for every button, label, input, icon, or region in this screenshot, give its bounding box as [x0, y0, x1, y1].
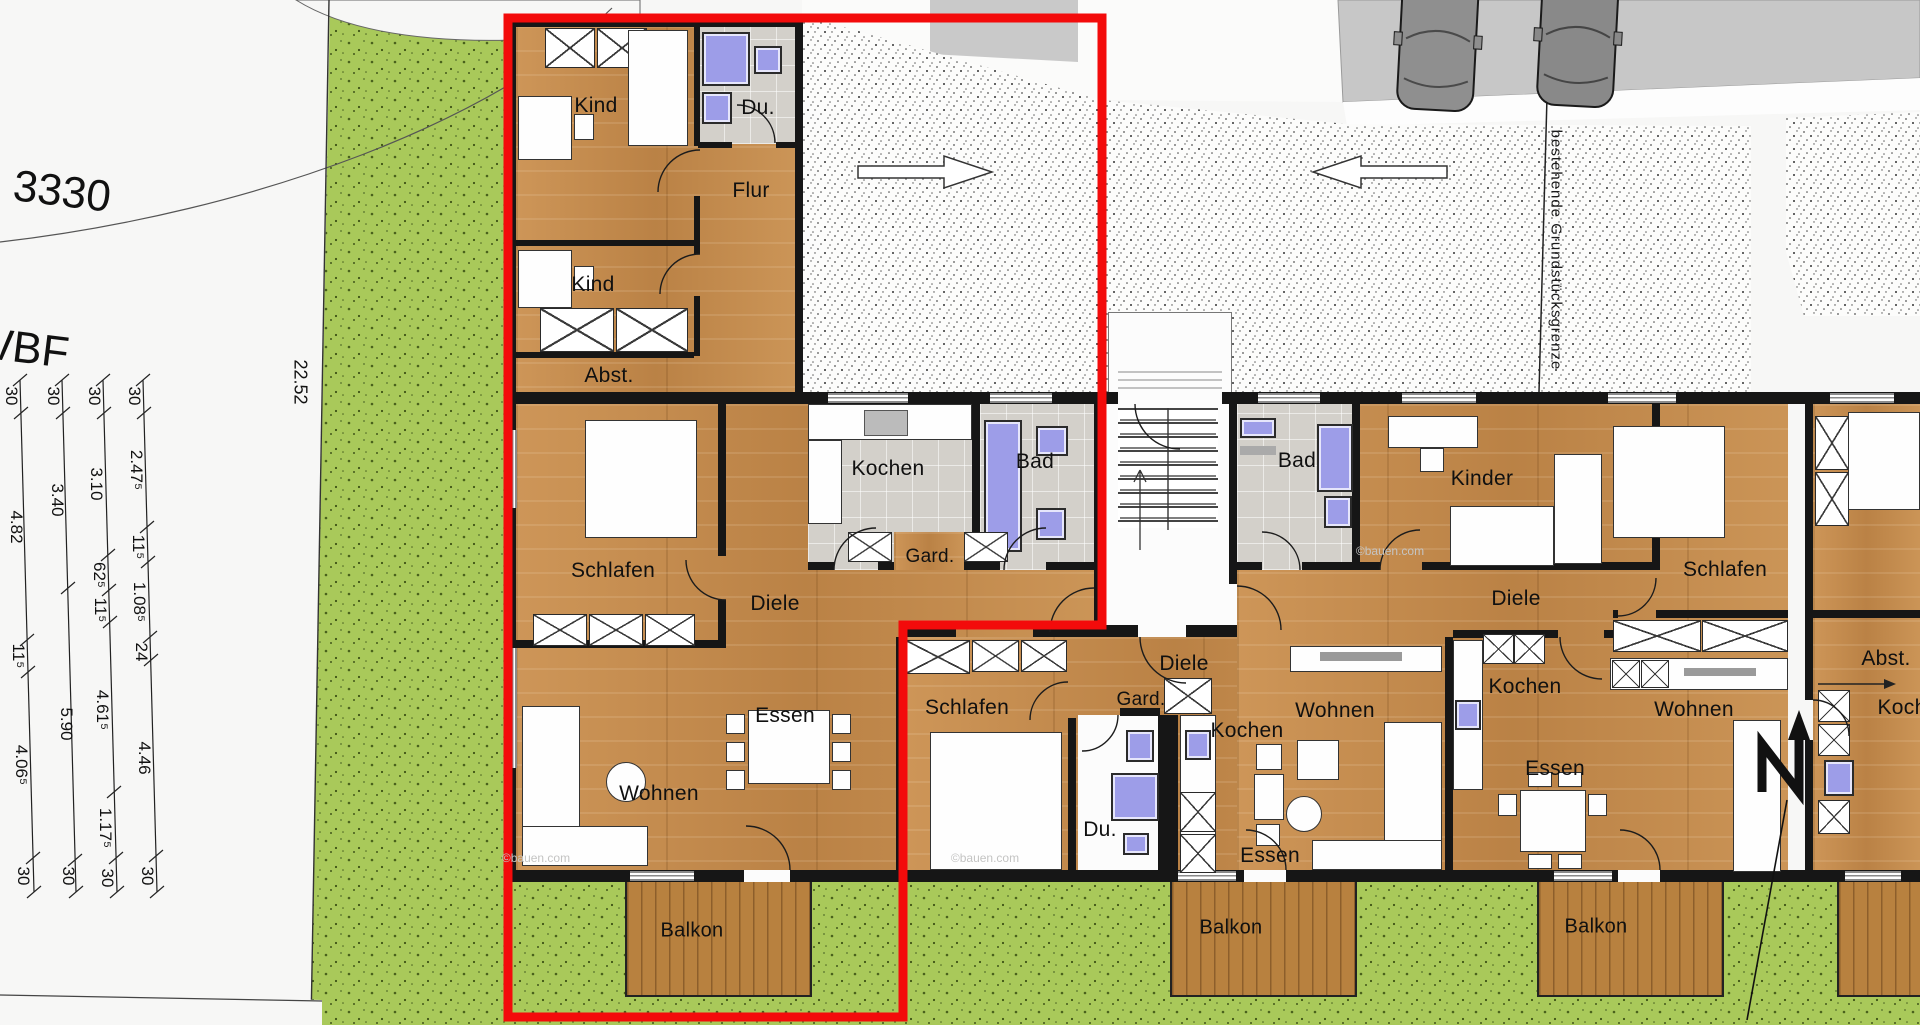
- kitchen-counter: [808, 440, 842, 524]
- dining-table: [1520, 790, 1586, 852]
- partition: [1068, 718, 1076, 870]
- window: [1402, 393, 1476, 403]
- road-strip: [1338, 0, 1920, 102]
- armchair: [1297, 740, 1339, 780]
- wardrobe: [906, 640, 970, 674]
- balcony-deck: [1537, 882, 1724, 997]
- wardrobe: [1554, 454, 1602, 564]
- partition: [694, 296, 700, 356]
- sofa: [1733, 720, 1781, 872]
- chair: [832, 770, 851, 790]
- room-label-diele3: Diele: [1491, 587, 1540, 611]
- wardrobe: [964, 532, 1008, 562]
- partition: [698, 142, 732, 148]
- wardrobe: [1815, 416, 1849, 470]
- dim-value: 62⁵: [89, 562, 109, 588]
- room-label-gard1: Gard.: [905, 546, 954, 568]
- room-label-bad1: Bad: [1016, 450, 1054, 474]
- partition: [808, 562, 834, 570]
- wall: [795, 20, 803, 392]
- dim-value: 30: [97, 869, 117, 888]
- driveway-stipple: [802, 15, 1751, 392]
- partition: [516, 240, 694, 246]
- cabinet: [1818, 724, 1850, 756]
- cabinet: [1818, 690, 1850, 722]
- chair: [1498, 794, 1517, 816]
- wardrobe: [848, 532, 892, 562]
- kitchen-cabinet: [1514, 634, 1545, 664]
- room-label-bad3: Bad: [1278, 449, 1316, 473]
- dim-value: 30: [43, 387, 63, 406]
- dim-value: 30: [13, 867, 33, 886]
- partition: [878, 562, 894, 570]
- wall: [508, 20, 802, 27]
- entrance-walkway: [1108, 312, 1232, 394]
- stairwell-wall: [1102, 625, 1138, 637]
- room-label-diele2: Diele: [1159, 652, 1208, 676]
- watermark: ©bauen.com: [502, 851, 570, 865]
- wardrobe: [545, 28, 595, 68]
- room-label-kochen3: Kochen: [1488, 675, 1561, 699]
- boundary-length: 22.52: [290, 359, 311, 404]
- wall: [1445, 637, 1453, 870]
- stairwell-wall: [1229, 392, 1237, 584]
- partition: [1302, 562, 1360, 570]
- wardrobe: [1021, 640, 1067, 672]
- wall: [903, 625, 956, 637]
- stairwell-wall: [1186, 625, 1237, 637]
- partition: [718, 600, 726, 648]
- chair: [1558, 854, 1582, 869]
- chair: [726, 770, 745, 790]
- chair: [1588, 794, 1607, 816]
- dim-value: 5.90: [56, 707, 76, 740]
- chair: [726, 714, 745, 734]
- wardrobe: [616, 308, 688, 352]
- car-icon: [1530, 0, 1627, 108]
- dim-value: 1.17⁵: [95, 808, 115, 848]
- room-label-kind1: Kind: [574, 94, 617, 118]
- toilet: [1123, 833, 1149, 855]
- dim-value: 4.06⁵: [11, 745, 31, 785]
- dim-value: 4.46: [134, 741, 154, 774]
- dim-value: 11⁵: [8, 644, 28, 669]
- dim-value: 2.47⁵: [126, 450, 146, 490]
- wardrobe: [1702, 620, 1788, 652]
- partition: [694, 196, 700, 254]
- dim-value: 4.82: [6, 510, 26, 543]
- balcony-deck: [1837, 882, 1920, 997]
- partition: [694, 26, 700, 146]
- balcony-door: [1618, 870, 1660, 882]
- room-label-du1: Du.: [741, 96, 775, 120]
- washbasin: [754, 46, 782, 74]
- site-line-bottom: [0, 995, 322, 1001]
- wall: [508, 20, 516, 392]
- arrow-left-icon: [1313, 156, 1447, 188]
- kitchen-sink: [864, 410, 908, 436]
- stairwell-wall: [1094, 392, 1102, 637]
- coffee-table: [1286, 796, 1322, 832]
- kitchen-sink: [1455, 700, 1481, 730]
- shower: [1317, 424, 1353, 492]
- bed: [930, 732, 1062, 870]
- road-shoulder: [1343, 78, 1920, 126]
- floor-plan-canvas: 3330 WBF 22.52 bestehende Grundstücksgre…: [0, 0, 1920, 1025]
- room-label-balkon2: Balkon: [1200, 917, 1263, 940]
- room-label-kind2: Kind: [571, 273, 614, 297]
- chair: [1420, 448, 1444, 472]
- bed: [1450, 506, 1554, 566]
- window: [990, 393, 1052, 403]
- kitchen-cabinet: [1483, 634, 1514, 664]
- room-label-wohnen3: Wohnen: [1654, 698, 1734, 722]
- dim-value: 11⁵: [128, 535, 148, 560]
- toilet: [1324, 496, 1352, 528]
- dim-value: 3.40: [47, 483, 67, 516]
- dim-value: 30: [124, 387, 144, 406]
- washbasin: [1126, 730, 1154, 762]
- boundary-name: bestehende Grundstücksgrenze: [1548, 130, 1565, 371]
- partition: [1046, 562, 1094, 570]
- wall: [1033, 625, 1102, 637]
- dim-value: 30: [58, 867, 78, 886]
- window: [1258, 393, 1320, 403]
- partition: [962, 562, 1000, 570]
- room-label-wohnen2: Wohnen: [1295, 699, 1375, 723]
- window: [828, 393, 908, 403]
- dining-table: [1254, 774, 1284, 820]
- bed: [585, 420, 697, 538]
- kitchen-cabinet: [1180, 792, 1216, 832]
- car-icon: [1390, 0, 1487, 112]
- dim-value: 30: [1, 387, 21, 406]
- wardrobe: [540, 308, 614, 352]
- washbasin: [1240, 418, 1276, 438]
- partition: [516, 352, 694, 358]
- partition: [1158, 715, 1178, 870]
- window: [508, 648, 517, 768]
- chair: [1256, 824, 1280, 846]
- wardrobe: [972, 640, 1019, 672]
- room-label-schlafen3: Schlafen: [1683, 558, 1767, 582]
- kitchen-sink: [1185, 730, 1211, 760]
- stipple-right-patch: [1786, 112, 1920, 316]
- site-wedge-bottom: [0, 993, 322, 1025]
- room-label-abst1: Abst.: [584, 364, 633, 388]
- toilet: [702, 92, 732, 124]
- partition: [1604, 630, 1613, 638]
- window: [1830, 393, 1894, 403]
- room-label-schlafen1: Schlafen: [571, 559, 655, 583]
- desk: [518, 250, 572, 308]
- room-label-du2: Du.: [1083, 818, 1117, 842]
- wardrobe: [589, 614, 643, 646]
- balcony-door: [744, 870, 790, 882]
- wardrobe: [645, 614, 695, 646]
- bed: [628, 30, 688, 146]
- bed: [1848, 412, 1920, 510]
- cabinet: [1641, 660, 1669, 688]
- chair: [1528, 854, 1552, 869]
- dim-value: 30: [84, 387, 104, 406]
- kitchen-cabinet: [1180, 834, 1216, 873]
- room-label-flur: Flur: [732, 179, 769, 203]
- tv: [1320, 652, 1402, 661]
- sofa: [1312, 840, 1442, 870]
- property-line-left: [311, 0, 329, 1025]
- room-label-essen2: Essen: [1240, 844, 1300, 868]
- parcel-number: 3330: [10, 161, 113, 223]
- window: [1554, 871, 1612, 881]
- partition: [1613, 610, 1618, 618]
- dim-value: 3.10: [86, 467, 106, 500]
- room-label-abst4: Abst.: [1861, 647, 1910, 671]
- staircase: [1118, 408, 1218, 528]
- shower-tray: [702, 32, 750, 86]
- cabinet: [1818, 800, 1850, 834]
- partition: [776, 142, 802, 148]
- partition: [1805, 404, 1813, 700]
- watermark: ©bauen.com: [951, 851, 1019, 865]
- room-label-diele1: Diele: [750, 592, 799, 616]
- kitchen-sink: [1824, 760, 1854, 796]
- room-label-essen1: Essen: [755, 704, 815, 728]
- room-label-balkon3: Balkon: [1565, 916, 1628, 939]
- area-designation: WBF: [0, 317, 72, 379]
- partition: [1805, 740, 1813, 870]
- tv: [1684, 668, 1756, 676]
- room-label-schlafen2: Schlafen: [925, 696, 1009, 720]
- bed: [1613, 426, 1725, 538]
- partition: [718, 404, 726, 556]
- dim-value: 24: [131, 643, 151, 662]
- arrow-right-icon: [858, 156, 992, 188]
- chair: [832, 714, 851, 734]
- grass-left-band: [311, 0, 508, 1025]
- room-label-wohnen1: Wohnen: [619, 782, 699, 806]
- wardrobe: [1164, 678, 1212, 714]
- wall: [896, 637, 904, 870]
- balcony-deck: [1170, 882, 1357, 997]
- desk: [518, 96, 572, 160]
- partition: [1237, 562, 1262, 570]
- balcony-door: [1244, 870, 1286, 882]
- dim-value: 4.61⁵: [92, 690, 112, 730]
- room-label-essen3: Essen: [1525, 757, 1585, 781]
- room-label-gard2: Gard.: [1116, 689, 1165, 711]
- pavement-gray-small: [930, 0, 1078, 62]
- entrance-door-opening: [1118, 392, 1222, 404]
- partition: [1813, 610, 1920, 618]
- partition: [1656, 610, 1788, 618]
- dim-value: 11⁵: [90, 598, 110, 623]
- dim-value: 30: [137, 867, 157, 886]
- wardrobe: [533, 614, 587, 646]
- room-label-kinder3: Kinder: [1451, 467, 1514, 491]
- wardrobe: [1815, 472, 1849, 526]
- toilet: [1036, 508, 1066, 540]
- chair: [726, 742, 745, 762]
- bath-shelf: [1240, 446, 1276, 455]
- room-label-kochen2: Kochen: [1210, 719, 1283, 743]
- window: [1608, 393, 1676, 403]
- desk: [1388, 416, 1478, 448]
- room-label-balkon1: Balkon: [661, 920, 724, 943]
- room-label-kochen1: Kochen: [851, 457, 924, 481]
- sofa: [1384, 722, 1442, 854]
- cabinet: [1612, 660, 1640, 688]
- window: [508, 430, 517, 508]
- partition: [1360, 562, 1380, 570]
- shower-tray: [1111, 773, 1159, 821]
- chair: [832, 742, 851, 762]
- watermark: ©bauen.com: [1356, 544, 1424, 558]
- pavement-white: [802, 0, 1343, 102]
- window: [1845, 871, 1901, 881]
- dim-value: 1.08⁵: [129, 582, 149, 622]
- chair: [1256, 744, 1282, 770]
- room-label-kochen4: Kochen: [1877, 696, 1920, 720]
- wardrobe: [1613, 620, 1701, 652]
- window: [630, 871, 694, 881]
